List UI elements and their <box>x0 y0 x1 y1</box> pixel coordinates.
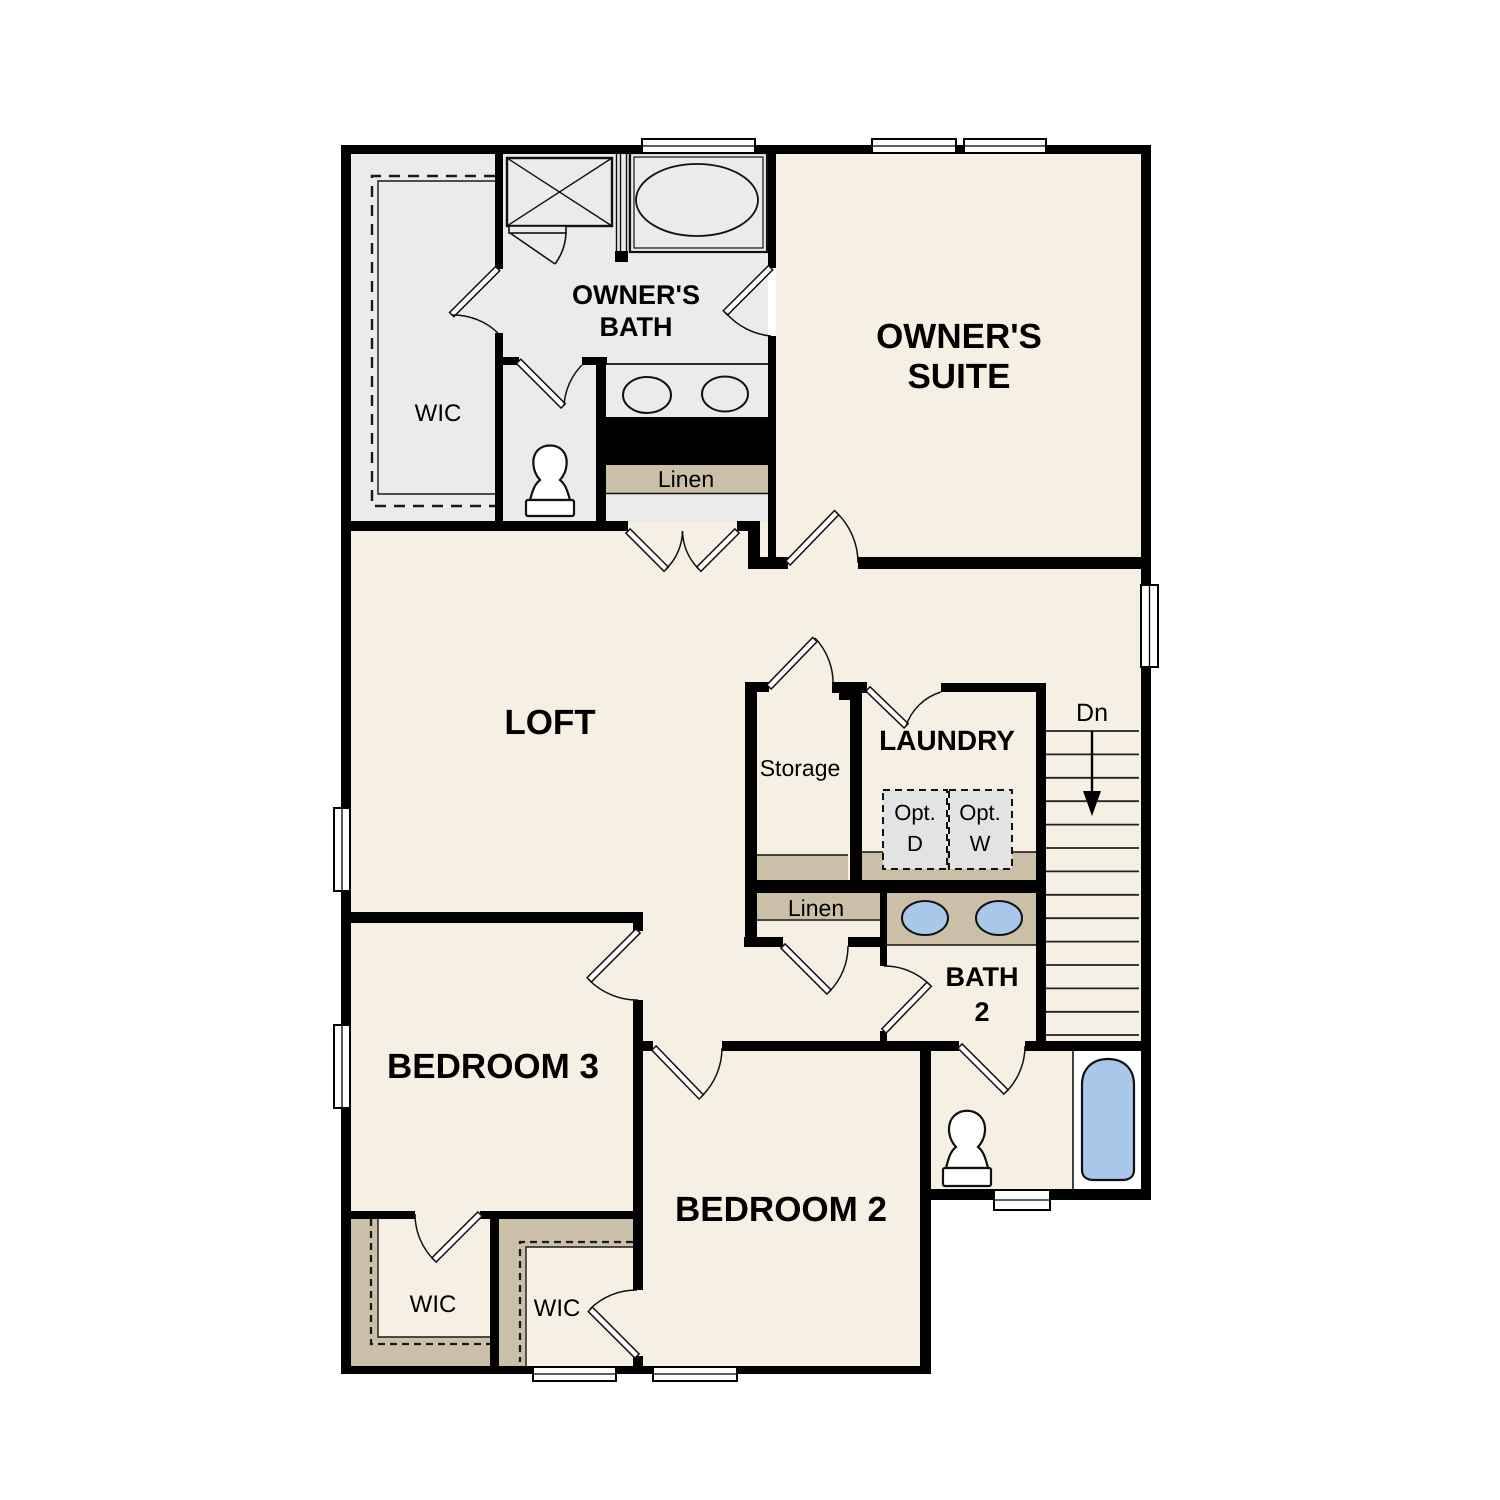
svg-text:D: D <box>907 831 923 856</box>
svg-text:Opt.: Opt. <box>959 800 1001 825</box>
svg-text:Linen: Linen <box>788 895 844 921</box>
svg-text:SUITE: SUITE <box>907 357 1010 396</box>
svg-text:OWNER'S: OWNER'S <box>572 280 700 310</box>
svg-text:Dn: Dn <box>1076 699 1108 727</box>
svg-text:WIC: WIC <box>415 400 462 427</box>
svg-text:LAUNDRY: LAUNDRY <box>879 725 1015 756</box>
svg-text:WIC: WIC <box>410 1291 457 1318</box>
svg-text:BEDROOM 3: BEDROOM 3 <box>387 1047 599 1086</box>
svg-text:Linen: Linen <box>658 466 714 492</box>
svg-text:WIC: WIC <box>534 1295 581 1322</box>
svg-text:Opt.: Opt. <box>894 800 936 825</box>
svg-text:2: 2 <box>974 997 989 1027</box>
svg-text:BEDROOM 2: BEDROOM 2 <box>675 1190 887 1229</box>
svg-text:Storage: Storage <box>760 755 841 781</box>
svg-text:W: W <box>970 831 991 856</box>
svg-text:BATH: BATH <box>600 312 673 342</box>
svg-text:LOFT: LOFT <box>504 703 595 742</box>
svg-text:OWNER'S: OWNER'S <box>876 317 1042 356</box>
svg-text:BATH: BATH <box>946 962 1019 992</box>
